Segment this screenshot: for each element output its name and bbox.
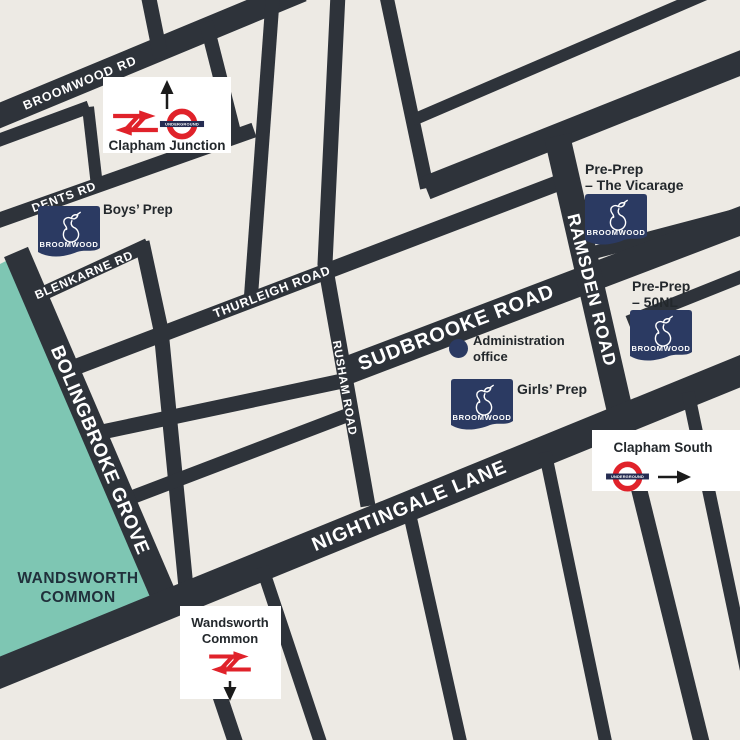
pre-prep-50nl-marker: Pre-Prep – 50NL xyxy=(630,278,692,361)
map-canvas: UNDERGROUND BROOMWOOD xyxy=(0,0,740,740)
pre-prep-vicarage-logo xyxy=(585,194,647,245)
wandsworth-common-station-marker: Wandsworth Common xyxy=(180,606,281,701)
clapham-south-label: Clapham South xyxy=(613,440,712,455)
clapham-junction-marker: Clapham Junction xyxy=(103,77,231,153)
wandsworth-common-label-line1: WANDSWORTH xyxy=(17,570,138,587)
clapham-junction-label: Clapham Junction xyxy=(108,138,225,153)
pre-prep-50nl-label-line1: Pre-Prep xyxy=(632,278,690,294)
pre-prep-50nl-logo xyxy=(630,310,692,361)
school-location-map: UNDERGROUND BROOMWOOD xyxy=(0,0,740,740)
pre-prep-50nl-label-line2: – 50NL xyxy=(632,294,678,310)
administration-office-label-line2: office xyxy=(473,349,508,364)
administration-office-label-line1: Administration xyxy=(473,333,565,348)
boys-prep-logo xyxy=(38,206,100,257)
pre-prep-vicarage-label-line1: Pre-Prep xyxy=(585,161,643,177)
boys-prep-label: Boys’ Prep xyxy=(103,202,173,217)
wandsworth-common-station-label-line2: Common xyxy=(202,631,258,646)
wandsworth-common-label-line2: COMMON xyxy=(40,589,115,606)
girls-prep-label: Girls’ Prep xyxy=(517,381,587,397)
pre-prep-vicarage-label-line2: – The Vicarage xyxy=(585,177,684,193)
clapham-south-marker: Clapham South xyxy=(592,430,740,491)
girls-prep-logo xyxy=(451,379,513,430)
wandsworth-common-station-label-line1: Wandsworth xyxy=(191,615,269,630)
administration-office-dot xyxy=(449,339,468,358)
